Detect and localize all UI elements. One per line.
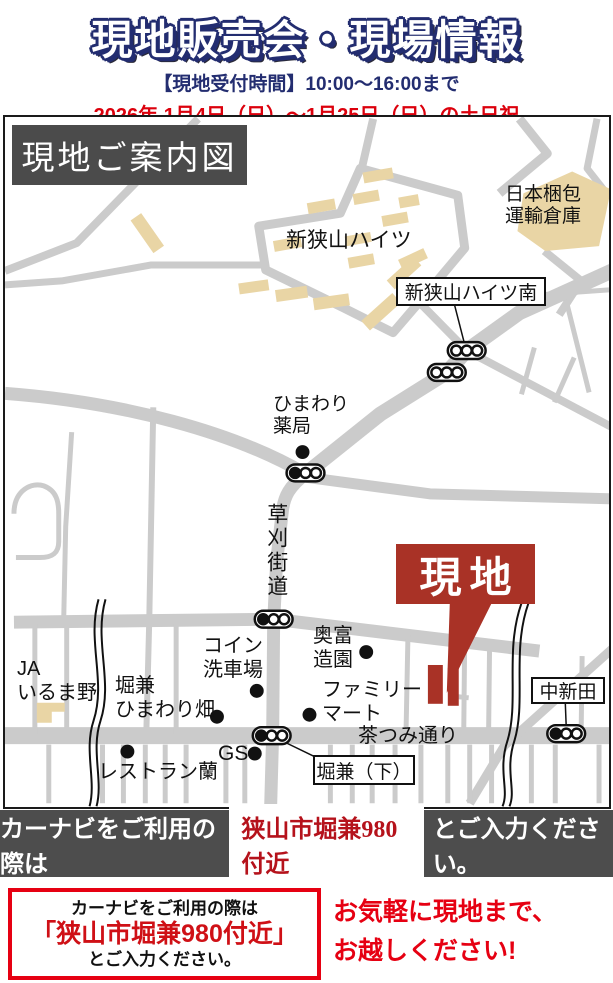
navi-box-line1: カーナビをご利用の際は <box>71 898 258 919</box>
car-navi-bar: カーナビをご利用の際は 狭山市堀兼980付近 とご入力ください。 <box>0 810 613 877</box>
car-navi-box: カーナビをご利用の際は 「狭山市堀兼980付近」 とご入力ください。 <box>8 888 321 980</box>
label-pharmacy: ひまわり 薬局 <box>273 394 349 439</box>
label-coin-wash: コイン 洗車場 <box>203 635 263 682</box>
poi-dot <box>296 445 310 459</box>
traffic-signal-icon <box>428 364 466 381</box>
label-ja-irumano: JA いるま野 <box>17 658 97 705</box>
label-signal-south: 新狭山ハイツ南 <box>396 277 546 306</box>
traffic-signal-icon <box>255 611 293 628</box>
label-okutomi: 奥富 造園 <box>313 625 353 672</box>
page-title: 現地販売会・現場情報 <box>0 6 613 66</box>
traffic-signal-icon <box>287 464 325 481</box>
navi-box-address: 「狭山市堀兼980付近」 <box>31 919 298 949</box>
poi-dot <box>250 684 264 698</box>
label-warehouse: 日本梱包 運輸倉庫 <box>505 184 581 229</box>
poi-dot <box>303 708 317 722</box>
navi-address-badge: 狭山市堀兼980付近 <box>229 804 423 884</box>
navi-bar-prefix: カーナビをご利用の際は <box>0 809 220 879</box>
navi-bar-suffix: とご入力ください。 <box>433 809 613 879</box>
navi-box-line3: とご入力ください。 <box>88 949 241 970</box>
traffic-signal-icon <box>547 725 585 742</box>
label-housing-complex: 新狭山ハイツ <box>286 229 412 254</box>
ja-building <box>37 703 65 723</box>
label-nakashinden: 中新田 <box>531 677 605 704</box>
guide-map: 現地ご案内図 新狭山ハイツ 日本梱包 運輸倉庫 新狭山ハイツ南 ひまわり 薬局 … <box>3 115 611 809</box>
poi-dot <box>120 745 134 759</box>
flyer-page: 現地販売会・現場情報 【現地受付時間】10:00～16:00まで 2026年 1… <box>0 0 613 983</box>
poi-dot <box>359 645 373 659</box>
traffic-signal-icon <box>448 342 486 359</box>
label-restaurant-ran: レストラン蘭 <box>98 761 218 785</box>
label-gas-station: GS <box>218 742 248 767</box>
map-title: 現地ご案内図 <box>12 125 247 185</box>
poi-dot <box>248 747 262 761</box>
label-horikane-shimo: 堀兼（下） <box>313 755 415 785</box>
label-himawari-field: 堀兼 ひまわり畑 <box>115 675 215 722</box>
site-marker <box>428 603 492 705</box>
invitation-text: お気軽に現地まで、 お越しください! <box>333 893 557 971</box>
label-chatsumi-street: 茶つみ通り <box>358 725 458 749</box>
label-familymart: ファミリー マート <box>322 679 422 726</box>
label-kusakari-road: 草刈街道 <box>263 503 288 599</box>
traffic-signal-icon <box>253 727 291 744</box>
header: 現地販売会・現場情報 【現地受付時間】10:00～16:00まで 2026年 1… <box>0 0 613 128</box>
site-callout: 現地 <box>396 544 535 604</box>
reception-hours: 【現地受付時間】10:00～16:00まで <box>0 69 613 96</box>
